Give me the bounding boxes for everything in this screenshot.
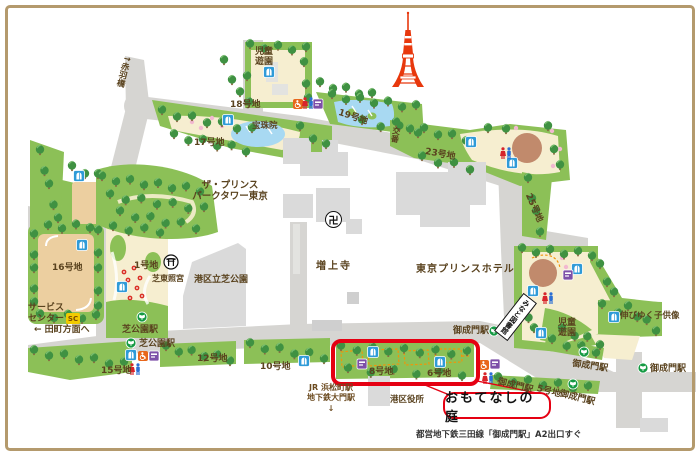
- service-center-label: サービス センター: [20, 303, 64, 325]
- tokyo-tower-icon: [392, 12, 424, 87]
- flower-icon: [122, 270, 127, 275]
- tree-icon: [220, 55, 228, 65]
- shiba-park-minato-label: 港区立芝公園: [194, 275, 248, 286]
- restroom-icon: [466, 137, 477, 148]
- tree-icon: [228, 75, 236, 85]
- plot-17-label: 17号地: [194, 138, 225, 149]
- tree-icon: [236, 87, 244, 97]
- restroom-icon: [368, 347, 379, 358]
- tree-icon: [170, 129, 178, 139]
- zojoji-hall-west: [283, 194, 313, 218]
- restroom-icon: [528, 286, 539, 297]
- tree-icon: [342, 83, 350, 93]
- restroom-icon: [536, 328, 547, 339]
- zojoji-label: 増上寺: [316, 261, 352, 273]
- restroom-icon: [609, 312, 620, 323]
- flower-icon: [135, 286, 140, 291]
- flower-icon: [140, 294, 145, 299]
- shibakoen-station-label: 芝公園駅: [139, 339, 175, 350]
- temple-manji-icon: 卍: [325, 211, 342, 228]
- tamachi-direction-label: ← 田町方面へ: [34, 325, 90, 336]
- accessible-restroom-icon: [293, 99, 303, 109]
- city-office-building: [368, 376, 390, 406]
- accessible-restroom-icon: [138, 351, 148, 361]
- down-arrow-icon: ↓: [328, 404, 335, 413]
- tree-icon: [320, 354, 328, 364]
- zojoji-gate: [312, 320, 342, 331]
- daimon-station-label: 地下鉄大門駅: [307, 393, 355, 402]
- plot-6-label: 6号地: [427, 369, 451, 380]
- toei-subway-entrance-icon: [568, 379, 578, 389]
- toei-subway-entrance-icon: [137, 312, 147, 322]
- tree-icon: [68, 161, 76, 171]
- accessible-restroom-icon: [479, 360, 489, 370]
- multipurpose-facility-icon: [313, 99, 323, 109]
- restroom-icon: [77, 240, 88, 251]
- onarimon-station-label: 御成門駅: [453, 326, 489, 337]
- shibakoen-station-label: 芝公園駅: [122, 325, 158, 336]
- flower-icon: [128, 296, 133, 301]
- children-park-north-label: 児童 遊園: [253, 47, 275, 68]
- blossom-icon: [210, 116, 214, 120]
- toei-subway-entrance-icon: [638, 363, 648, 373]
- plot-16-label: 16号地: [52, 263, 83, 274]
- plot-8-label: 8号地: [369, 367, 393, 378]
- restroom-icon: [299, 356, 310, 367]
- restroom-icon: [264, 67, 275, 78]
- torii-shrine-icon: [164, 255, 178, 269]
- restroom-icon: [507, 158, 518, 169]
- park-map: 児童 遊園 18号地 19号地 17号地 宝珠院 ↑赤羽橋 ザ・プリンス パーク…: [0, 0, 700, 456]
- prince-park-tower-label: ザ・プリンス パークタワー東京: [180, 180, 280, 203]
- blossom-icon: [551, 164, 555, 168]
- restroom-icon: [74, 171, 85, 182]
- tree-icon: [316, 77, 324, 87]
- restroom-icon: [223, 115, 234, 126]
- blossom-icon: [514, 126, 518, 130]
- plot-1-label: 1号地: [134, 261, 158, 272]
- multipurpose-facility-icon: [357, 359, 367, 369]
- tree-icon: [458, 371, 466, 381]
- children-park-east-label: 児童 遊園: [556, 318, 578, 339]
- restroom-icon: [117, 282, 128, 293]
- flower-icon: [138, 276, 143, 281]
- tree-icon: [227, 141, 235, 151]
- omotenashi-garden-label: おもてなしの庭: [443, 392, 551, 419]
- city-office-label: 港区役所: [390, 395, 424, 405]
- multipurpose-facility-icon: [490, 359, 500, 369]
- jr-hamamatsucho-label: JR 浜松町駅: [309, 383, 353, 392]
- tree-icon: [412, 370, 420, 380]
- service-center-badge: SC: [66, 313, 80, 324]
- plot-10-label: 10号地: [260, 362, 291, 373]
- restroom-icon: [126, 350, 137, 361]
- plot-15-label: 15号地: [101, 366, 132, 377]
- blossom-icon: [550, 129, 554, 133]
- toei-subway-entrance-icon: [126, 338, 136, 348]
- blossom-icon: [199, 126, 203, 130]
- multipurpose-facility-icon: [149, 351, 159, 361]
- hoshuin-label: 宝珠院: [252, 121, 278, 131]
- tree-icon: [368, 88, 376, 98]
- blossom-icon: [564, 265, 568, 269]
- restroom-icon: [435, 357, 446, 368]
- tree-icon: [184, 136, 192, 146]
- subway-access-note: 都営地下鉄三田線「御成門駅」A2出口すぐ: [416, 428, 582, 440]
- shiba-toshogu-label: 芝東照宮: [152, 274, 184, 284]
- plot-18-label: 18号地: [230, 100, 261, 111]
- plot-12-label: 12号地: [197, 354, 228, 365]
- multipurpose-facility-icon: [563, 270, 573, 280]
- nobiyuku-statue-label: 伸びゆく子供像: [620, 311, 680, 321]
- blossom-icon: [558, 147, 562, 151]
- tokyo-prince-hotel-label: 東京プリンスホテル: [416, 264, 515, 276]
- toei-subway-entrance-icon: [579, 347, 589, 357]
- jr-daimon-stations-label: JR 浜松町駅地下鉄大門駅↓: [300, 383, 362, 414]
- shiba-park-building: [183, 243, 246, 329]
- tree-icon: [242, 147, 250, 157]
- onarimon-station-label: 御成門駅: [650, 364, 686, 375]
